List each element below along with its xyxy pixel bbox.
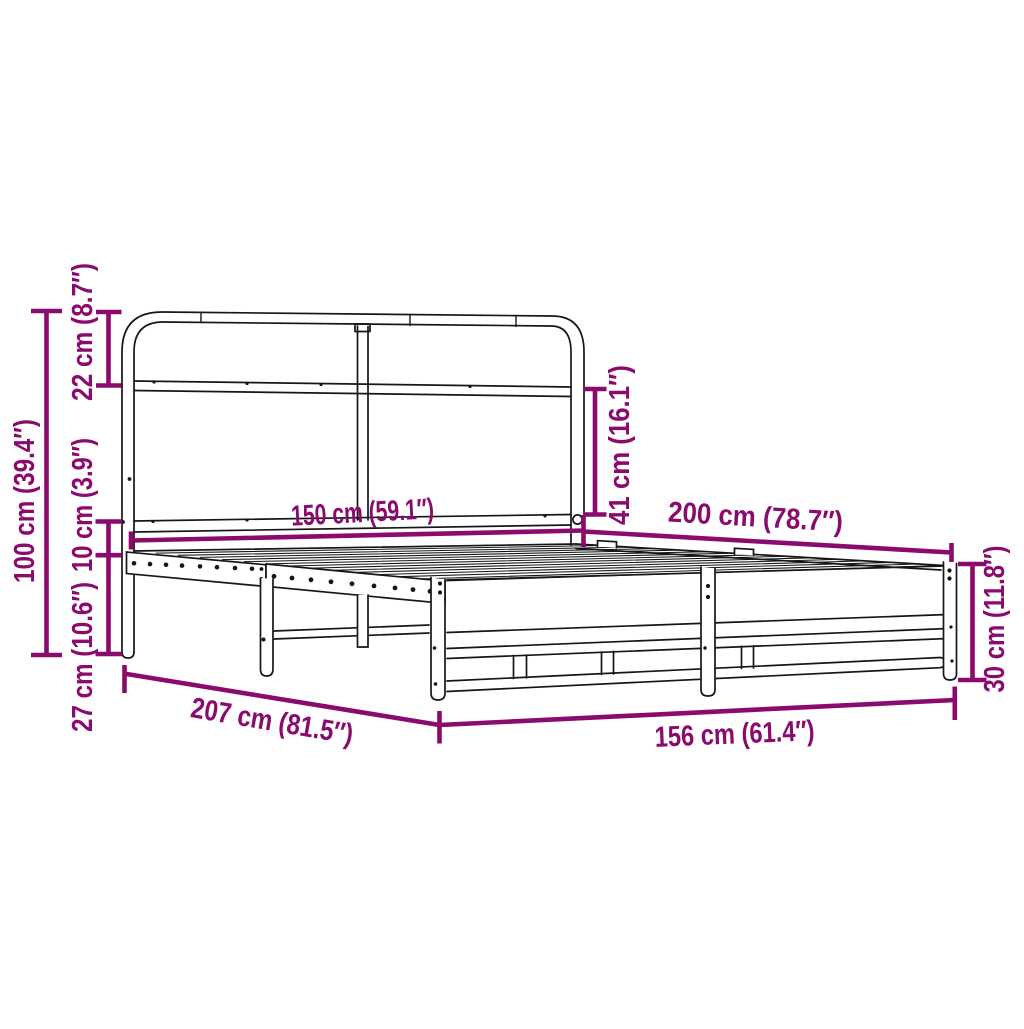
svg-text:41 cm (16.1″): 41 cm (16.1″) (604, 365, 636, 525)
svg-text:30 cm (11.8″): 30 cm (11.8″) (979, 546, 1011, 693)
svg-text:100 cm (39.4″): 100 cm (39.4″) (9, 419, 41, 583)
svg-text:156 cm (61.4″): 156 cm (61.4″) (654, 715, 815, 754)
svg-text:27 cm (10.6″): 27 cm (10.6″) (67, 582, 99, 732)
svg-text:22 cm (8.7″): 22 cm (8.7″) (67, 263, 99, 401)
svg-text:10 cm (3.9″): 10 cm (3.9″) (67, 438, 99, 572)
